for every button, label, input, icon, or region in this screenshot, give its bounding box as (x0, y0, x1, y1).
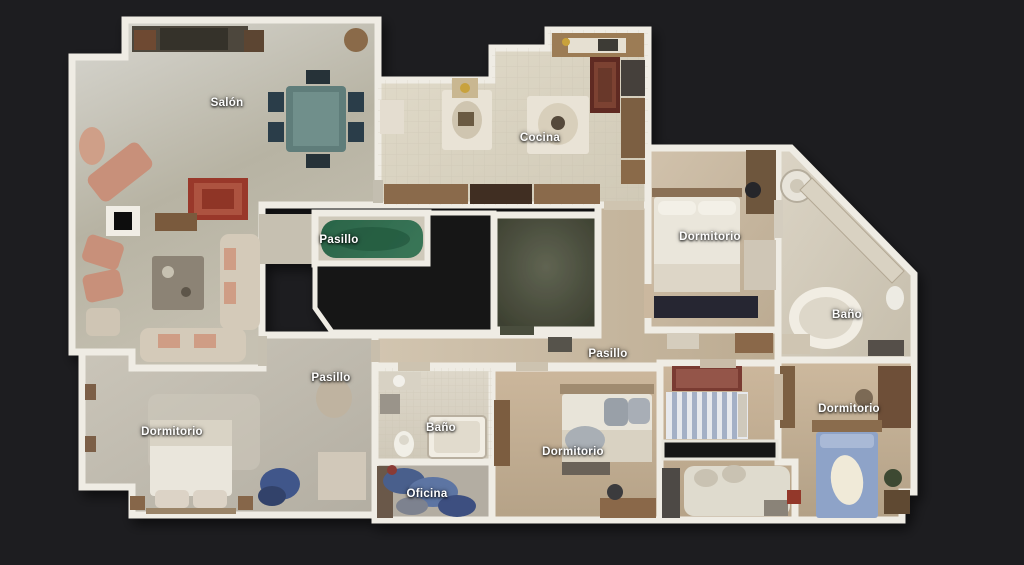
floorplan-canvas: SalónCocinaPasilloDormitorioBañoPasilloP… (0, 0, 1024, 565)
pasillo-top-rug (321, 220, 423, 258)
salon-hall-opening (259, 214, 319, 264)
floorplan-svg (0, 0, 1024, 565)
room-dark-unfurnished[interactable] (494, 215, 598, 330)
